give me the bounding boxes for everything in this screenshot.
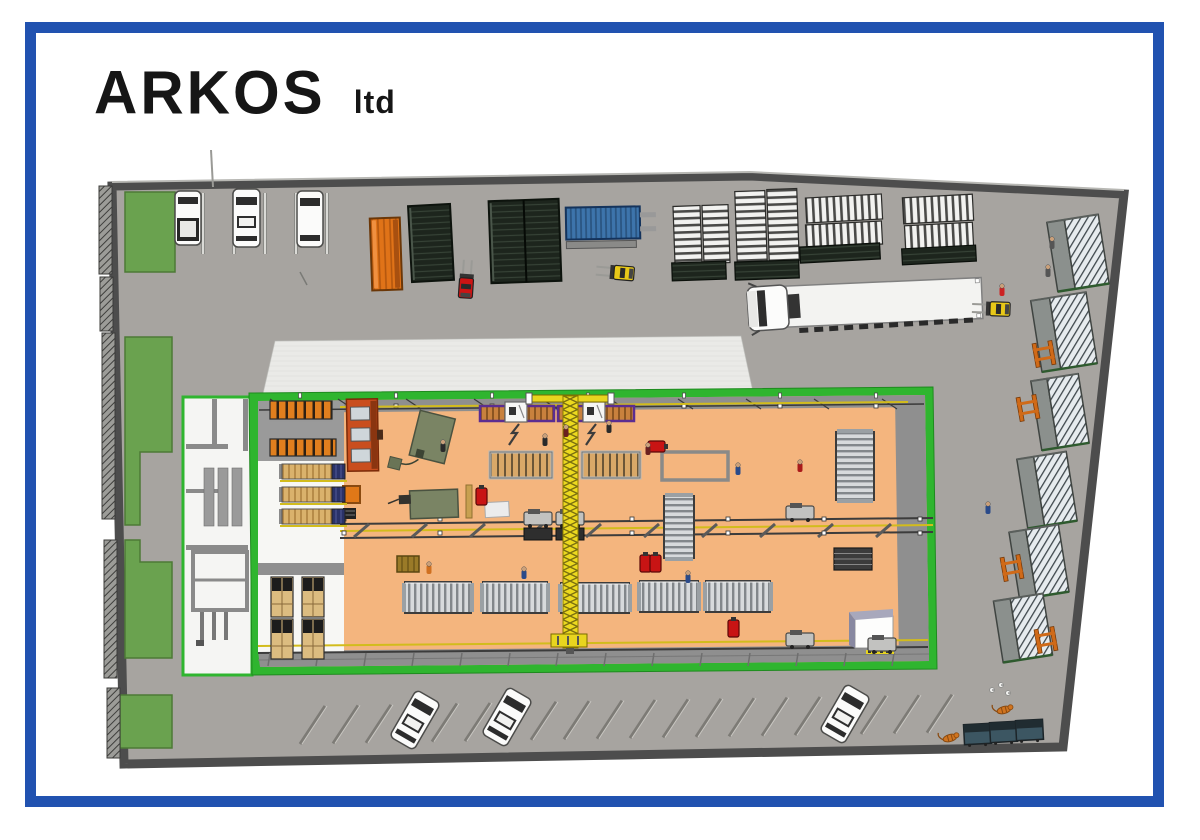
worker: [441, 440, 446, 452]
site-plan: [0, 0, 1200, 840]
fence-segment: [104, 540, 117, 678]
orange-pallet-rack: [270, 401, 332, 419]
pallet-stack: [902, 194, 973, 224]
red-canister: [640, 552, 651, 572]
roller-rack: [836, 429, 874, 503]
container-dark: [489, 199, 562, 283]
slat-table: [490, 452, 552, 478]
dumpster: [1015, 719, 1043, 743]
worker: [607, 421, 612, 433]
canopy: [262, 336, 753, 398]
white-board: [485, 501, 510, 517]
annex-building: [183, 397, 252, 675]
worker: [427, 562, 432, 574]
red-canister: [650, 552, 661, 572]
dark-stack: [735, 260, 800, 280]
pallet-row: [279, 464, 347, 481]
left-zone-partition: [258, 563, 344, 575]
box-stack: [302, 577, 324, 617]
car-suv: [297, 191, 323, 247]
dark-stack: [672, 261, 727, 281]
workshop-right-band: [895, 395, 929, 661]
material-shed: [1031, 374, 1089, 451]
ribbed-rack: [480, 582, 550, 613]
worker: [686, 571, 691, 583]
material-shed: [1047, 214, 1109, 291]
worker: [522, 567, 527, 579]
pallet-stack: [673, 206, 702, 265]
pallet-stack: [735, 190, 767, 263]
ribbed-rack: [703, 581, 773, 612]
fence-segment: [107, 688, 120, 758]
worker: [736, 463, 741, 475]
ribbed-rack: [402, 582, 474, 613]
worker: [1000, 284, 1005, 296]
pigeon: [999, 683, 1004, 688]
pallet-row: [279, 509, 347, 526]
fence-segment: [100, 277, 113, 331]
container-orange: [370, 217, 402, 290]
pigeon: [990, 688, 995, 693]
red-canister: [648, 441, 668, 452]
box-stack: [302, 619, 324, 659]
car-pickup: [175, 191, 201, 245]
box-stack: [271, 577, 293, 617]
container-dark: [408, 204, 454, 282]
worker: [986, 502, 991, 514]
slat-table: [582, 452, 640, 478]
pallet-stack: [805, 194, 882, 223]
cart: [524, 509, 552, 540]
orange-bin: [343, 486, 360, 503]
material-shed: [1017, 452, 1077, 529]
grass-patch: [125, 192, 175, 272]
red-canister: [728, 617, 739, 637]
fence-segment: [102, 333, 115, 519]
worker: [1046, 265, 1051, 277]
pigeon: [1006, 691, 1011, 696]
cart: [868, 635, 896, 654]
worker: [543, 434, 548, 446]
top-parking-layer: [175, 189, 327, 254]
dark-stack: [902, 245, 977, 265]
dumpster: [989, 721, 1017, 745]
box-stack: [271, 619, 293, 659]
dark-stack: [800, 243, 881, 263]
pallet-row: [279, 487, 347, 504]
paint-furnace: [346, 399, 383, 472]
grass-patch: [120, 695, 172, 748]
dark-grid-rack: [834, 548, 872, 570]
brown-crate: [397, 556, 419, 572]
pallet-stack: [767, 188, 799, 261]
material-shed: [993, 593, 1052, 662]
worker: [798, 460, 803, 472]
wood-plank: [466, 485, 472, 518]
pallet-stack: [702, 205, 730, 264]
orange-pallet-rack: [270, 439, 336, 456]
worker: [646, 443, 651, 455]
car-sedan: [233, 189, 260, 247]
fence-segment: [99, 186, 112, 274]
worker: [1050, 237, 1055, 249]
page: ARKOS ltd: [0, 0, 1200, 840]
cart: [786, 503, 814, 522]
roller-rack: [664, 493, 694, 561]
white-machine: [505, 402, 527, 422]
ribbed-rack: [637, 581, 701, 612]
cart: [786, 630, 814, 649]
worker: [564, 425, 569, 437]
red-canister: [476, 485, 487, 505]
white-machine: [583, 402, 605, 422]
dumpster: [963, 723, 991, 747]
